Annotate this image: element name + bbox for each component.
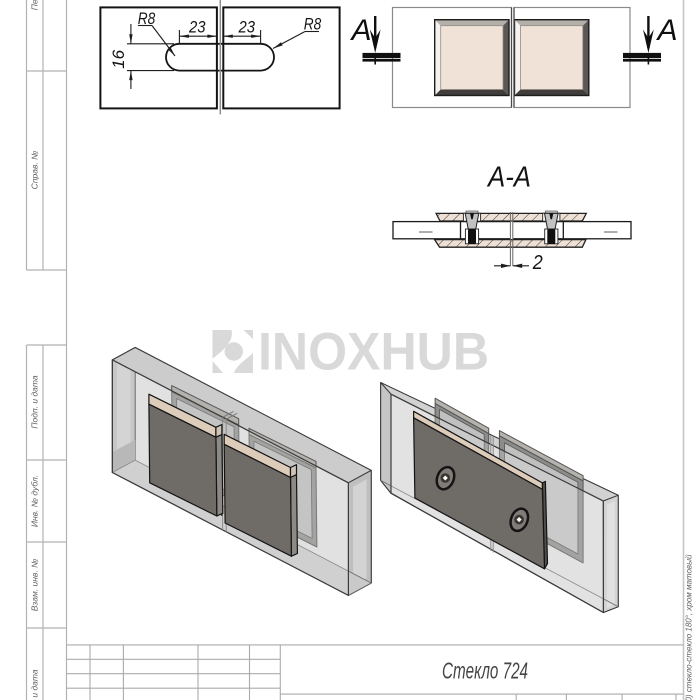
svg-text:Подп. и дата: Подп. и дата — [30, 375, 40, 428]
svg-text:16: 16 — [110, 49, 128, 69]
svg-text:A: A — [656, 14, 678, 47]
svg-text:INOXHUB: INOXHUB — [258, 323, 489, 382]
svg-text:50) стекло-стекло 180°, хром м: 50) стекло-стекло 180°, хром матовый — [685, 554, 694, 700]
svg-text:Инв. № дубл.: Инв. № дубл. — [30, 475, 40, 527]
svg-text:R8: R8 — [138, 10, 156, 28]
svg-text:Стекло 724: Стекло 724 — [442, 658, 528, 684]
svg-text:23: 23 — [238, 19, 256, 37]
svg-text:R8: R8 — [304, 16, 322, 34]
svg-text:Справ. №: Справ. № — [30, 151, 40, 190]
svg-text:23: 23 — [188, 19, 206, 37]
svg-text:Взам. инв. №: Взам. инв. № — [30, 559, 40, 612]
svg-text:A: A — [350, 14, 372, 47]
svg-text:Перв. примен.: Перв. примен. — [30, 0, 40, 10]
svg-text:2: 2 — [532, 252, 543, 274]
svg-text:A-A: A-A — [486, 162, 531, 194]
svg-text:Подп. и дата: Подп. и дата — [30, 669, 40, 700]
